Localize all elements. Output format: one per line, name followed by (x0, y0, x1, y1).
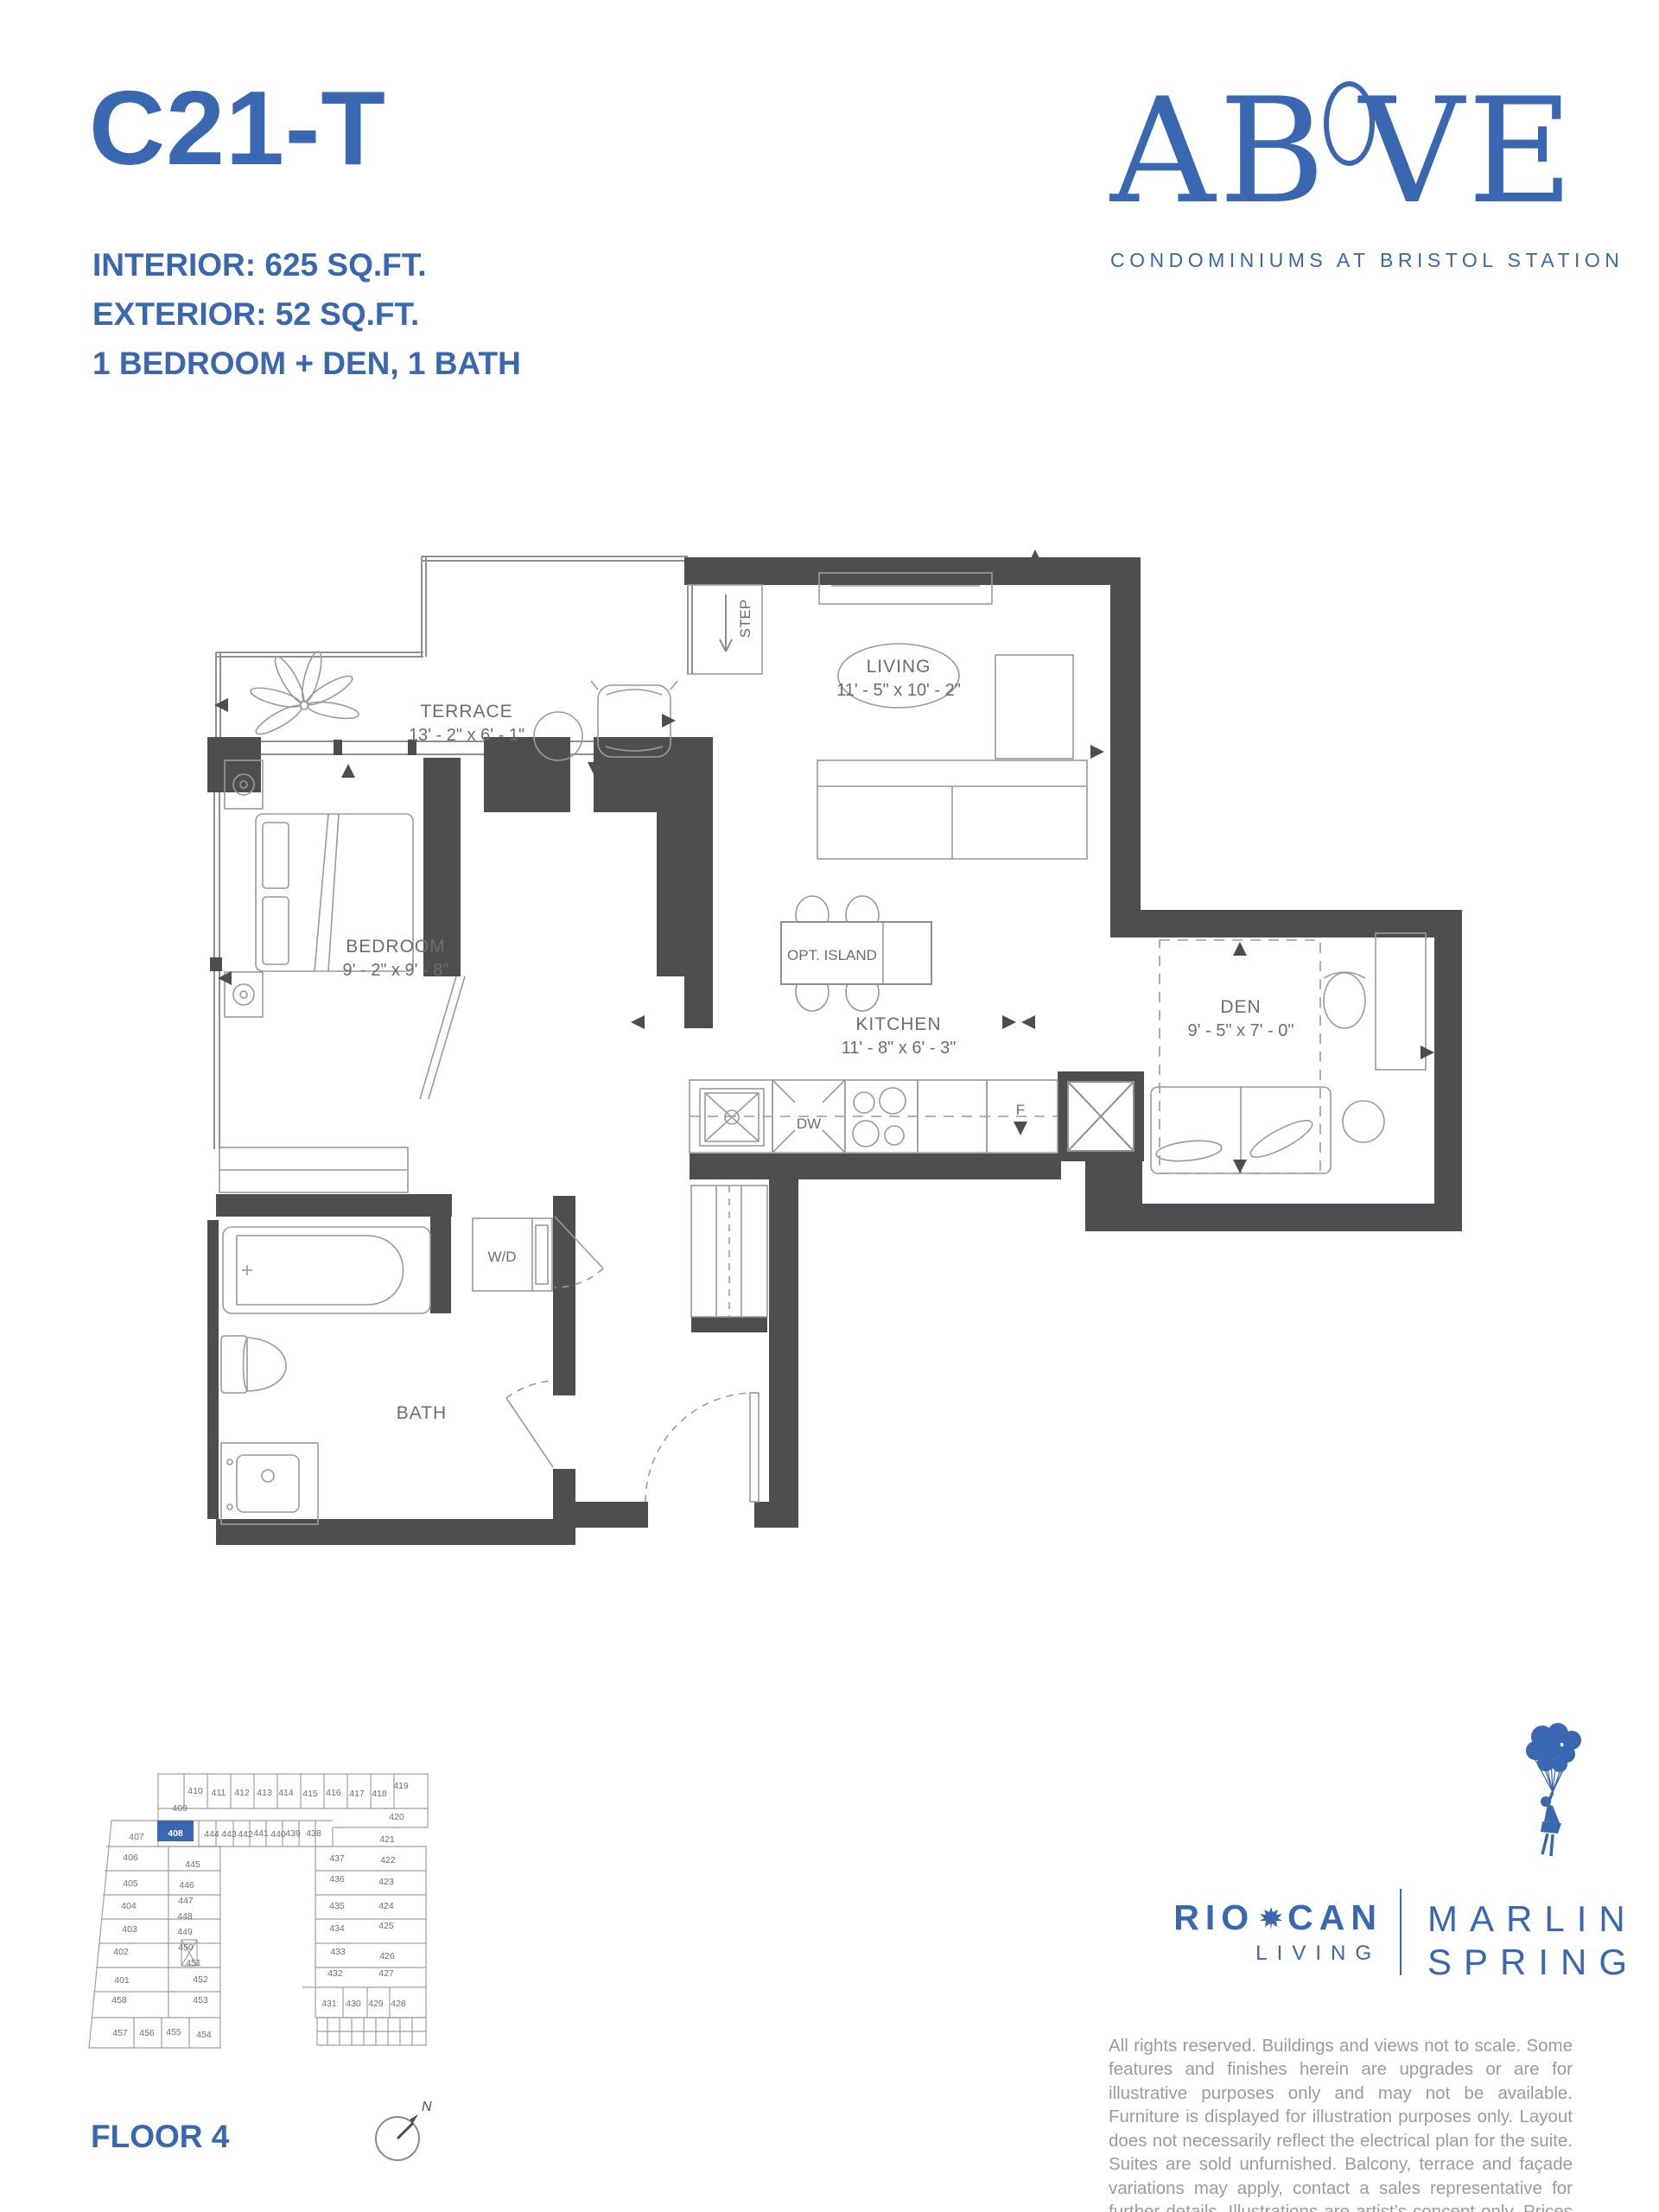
keyplan-unit-number: 451 (186, 1958, 201, 1968)
keyplan-unit-number: 455 (166, 2027, 181, 2037)
keyplan-unit-number: 439 (285, 1828, 301, 1839)
den-label: DEN (1220, 997, 1261, 1017)
maple-leaf-icon (1260, 1907, 1282, 1929)
floor-label: FLOOR 4 (91, 2119, 229, 2155)
bath-label: BATH (397, 1403, 447, 1423)
keyplan-unit-number: 401 (114, 1975, 130, 1986)
island-label: OPT. ISLAND (787, 947, 877, 963)
riocan-living-logo: RIO CAN LIVING (1156, 1897, 1382, 1966)
keyplan-unit-number: 413 (257, 1788, 272, 1798)
kitchen-label: KITCHEN (855, 1014, 941, 1034)
keyplan-unit-number: 454 (196, 2030, 212, 2040)
keyplan-unit-number: 436 (329, 1874, 345, 1885)
keyplan-unit-number: 419 (393, 1781, 409, 1791)
keyplan-unit-number: 421 (379, 1834, 395, 1845)
marlin-spring-logo: MARLIN SPRING (1427, 1897, 1639, 1984)
keyplan-unit-number: 433 (330, 1947, 346, 1957)
spec-line: EXTERIOR: 52 SQ.FT. (92, 289, 521, 339)
bath-fixtures (221, 1227, 553, 1524)
compass-north-label: N (422, 2100, 432, 2114)
keyplan-unit-number: 448 (177, 1911, 193, 1922)
plant-icon (249, 650, 359, 739)
logo-divider (1400, 1889, 1402, 1975)
dishwasher-label: DW (797, 1116, 821, 1132)
floorplan-drawing: TERRACE 13' - 2" x 6' - 1" LIVING 11' - … (207, 544, 1469, 1555)
keyplan-unit-number: 410 (188, 1786, 203, 1796)
den-furniture (1151, 933, 1426, 1173)
washer-dryer-label: W/D (487, 1249, 516, 1265)
keyplan-unit-number: 425 (378, 1921, 394, 1931)
keyplan-unit-number: 453 (193, 1995, 208, 2005)
keyplan-unit-number: 440 (270, 1829, 286, 1840)
keyplan-unit-number: 422 (380, 1855, 396, 1866)
compass-icon: N (363, 2095, 441, 2173)
walls (207, 557, 1462, 1545)
unit-specs: INTERIOR: 625 SQ.FT.EXTERIOR: 52 SQ.FT.1… (92, 240, 521, 388)
brand-wordmark: AB VE (1110, 69, 1577, 233)
keyplan-unit-number: 407 (129, 1832, 144, 1842)
keyplan-unit-number: 424 (378, 1901, 394, 1911)
keyplan-unit-number: 432 (327, 1968, 343, 1979)
keyplan-unit-number: 427 (378, 1968, 394, 1979)
keyplan-unit-number: 426 (379, 1951, 395, 1961)
bedroom-dims: 9' - 2" x 9' - 8" (343, 961, 449, 980)
keyplan-unit-number: 437 (329, 1853, 345, 1864)
keyplan-unit-number: 405 (123, 1878, 138, 1889)
brand-tagline: CONDOMINIUMS AT BRISTOL STATION (1110, 249, 1577, 272)
keyplan-unit-number: 441 (253, 1828, 269, 1839)
keyplan-unit-number: 430 (346, 1999, 361, 2009)
step-label: STEP (737, 600, 753, 638)
marlin-line1: MARLIN (1427, 1897, 1639, 1941)
living-dims: 11' - 5" x 10' - 2" (836, 681, 961, 700)
riocan-word-left: RIO (1173, 1897, 1255, 1938)
room-labels: TERRACE 13' - 2" x 6' - 1" LIVING 11' - … (343, 600, 1294, 1423)
keyplan-unit-number: 452 (193, 1974, 208, 1985)
spec-line: INTERIOR: 625 SQ.FT. (92, 240, 521, 289)
keyplan-unit-number: 409 (172, 1803, 188, 1814)
keyplan-unit-number: 458 (111, 1995, 127, 2005)
keyplan-unit-number: 408 (168, 1828, 183, 1839)
brand-o-circle-icon (1324, 81, 1375, 166)
keyplan-unit-number: 457 (112, 2028, 128, 2038)
entry-closet (691, 1185, 767, 1317)
living-furniture (817, 573, 1087, 859)
keyplan-unit-number: 431 (321, 1999, 337, 2009)
floorplan-page: C21-T INTERIOR: 625 SQ.FT.EXTERIOR: 52 S… (0, 0, 1659, 2212)
keyplan-unit-number: 404 (121, 1901, 137, 1911)
keyplan-unit-number: 438 (306, 1828, 321, 1839)
keyplan-unit-number: 435 (329, 1901, 345, 1911)
keyplan-unit-number: 403 (122, 1924, 137, 1935)
marlin-line2: SPRING (1427, 1941, 1639, 1984)
unit-code: C21-T (89, 67, 386, 188)
keyplan-unit-number: 414 (278, 1788, 294, 1798)
riocan-word-right: CAN (1287, 1897, 1382, 1938)
keyplan-unit-number: 418 (372, 1789, 387, 1799)
keyplan-unit-number: 420 (389, 1812, 404, 1822)
keyplan-unit-number: 445 (185, 1859, 200, 1870)
spec-line: 1 BEDROOM + DEN, 1 BATH (92, 339, 521, 388)
keyplan-unit-number: 456 (139, 2028, 155, 2038)
fridge-label: F (1016, 1102, 1025, 1118)
keyplan-unit-number: 428 (391, 1999, 406, 2009)
keyplan-unit-number: 406 (123, 1853, 138, 1863)
brand-word-left: AB (1110, 69, 1329, 233)
keyplan-unit-number: 417 (349, 1789, 365, 1799)
living-label: LIVING (867, 657, 931, 677)
keyplan-unit-number: 434 (329, 1923, 345, 1934)
keyplan-unit-number: 444 (204, 1829, 219, 1840)
keyplan-unit-number: 411 (212, 1788, 226, 1798)
brand-logo: AB VE CONDOMINIUMS AT BRISTOL STATION (1110, 69, 1577, 272)
keyplan-unit-number: 429 (368, 1999, 384, 2009)
legal-disclaimer: All rights reserved. Buildings and views… (1109, 2034, 1573, 2212)
suite-entry-door (645, 1393, 759, 1502)
bedroom-label: BEDROOM (346, 937, 446, 957)
kitchen-dims: 11' - 8" x 6' - 3" (842, 1039, 957, 1058)
keyplan-unit-number: 415 (302, 1789, 318, 1799)
keyplan-unit-number: 449 (177, 1927, 193, 1937)
keyplan-unit-number: 442 (238, 1829, 253, 1840)
keyplan-unit-number: 443 (221, 1829, 237, 1840)
kitchen-counters (690, 1080, 1058, 1153)
keyplan-unit-number: 402 (113, 1947, 129, 1957)
keyplan-unit-number: 423 (378, 1877, 394, 1887)
brand-word-right: VE (1359, 69, 1577, 233)
balloon-girl-logo (1493, 1718, 1605, 1873)
keyplan-unit-number: 450 (178, 1942, 194, 1953)
riocan-living-label: LIVING (1156, 1942, 1382, 1966)
den-dims: 9' - 5" x 7' - 0" (1188, 1021, 1294, 1040)
terrace-dims: 13' - 2" x 6' - 1" (409, 726, 524, 745)
keyplan-units: 4104114124134144154164174184194094084074… (111, 1781, 409, 2040)
keyplan-unit-number: 412 (234, 1788, 250, 1798)
keyplan-unit-number: 416 (326, 1788, 341, 1798)
keyplan-unit-number: 446 (179, 1880, 194, 1891)
keyplan-unit-number: 447 (178, 1896, 194, 1906)
terrace-label: TERRACE (420, 702, 512, 721)
keyplan-drawing: 4104114124134144154164174184194094084074… (82, 1758, 445, 2104)
